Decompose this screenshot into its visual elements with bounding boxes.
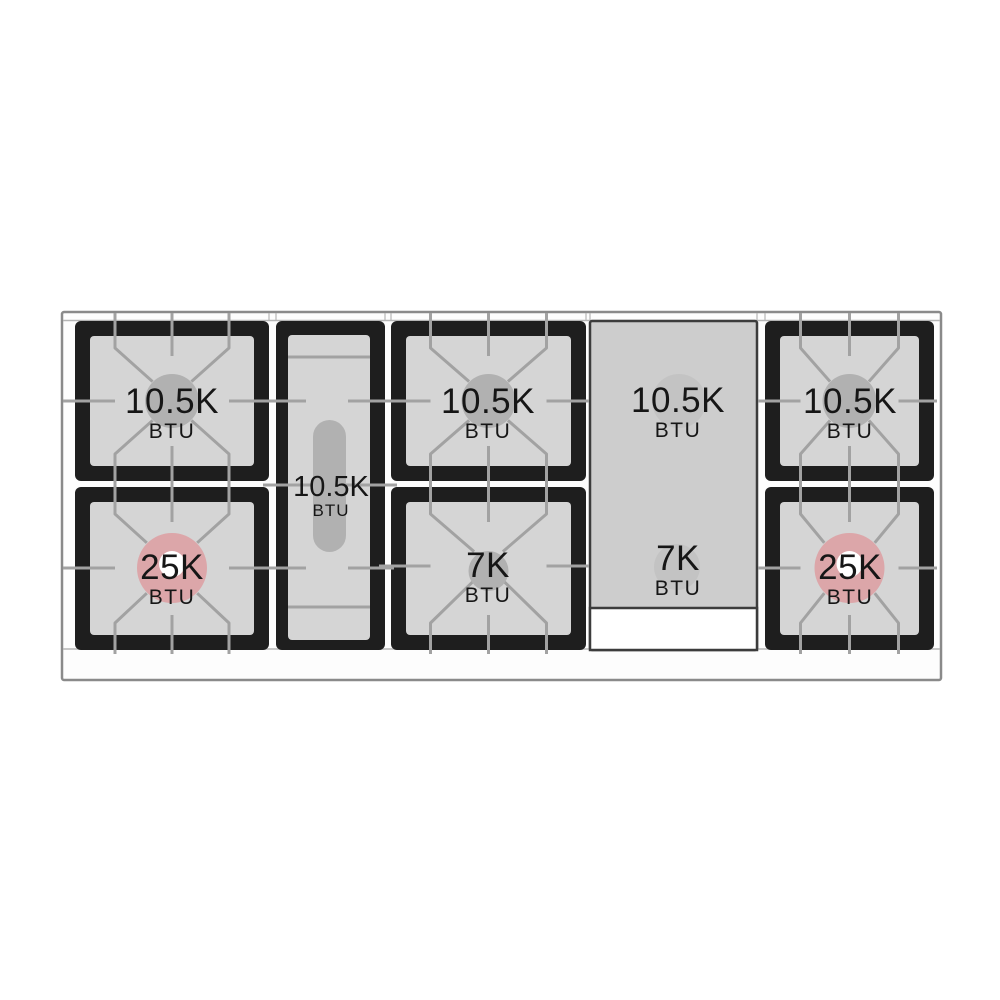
burner-label-mid-front: 7K BTU <box>465 549 512 608</box>
burner-label-right-rear: 10.5K BTU <box>803 385 897 444</box>
btu-value: 10.5K <box>293 473 369 501</box>
burner-label-center-oval: 10.5K BTU <box>293 473 369 520</box>
burner-label-left-rear: 10.5K BTU <box>125 385 219 444</box>
btu-value: 10.5K <box>631 384 725 418</box>
btu-value: 25K <box>818 551 882 585</box>
btu-value: 10.5K <box>803 385 897 419</box>
burner-label-right-front: 25K BTU <box>818 551 882 610</box>
btu-value: 25K <box>140 551 204 585</box>
btu-unit: BTU <box>655 577 702 601</box>
btu-unit: BTU <box>441 420 535 444</box>
cooktop-diagram: 10.5K BTU 25K BTU 10.5K BTU 10.5K BTU 7K… <box>0 0 1000 1000</box>
btu-value: 7K <box>655 542 702 576</box>
btu-value: 10.5K <box>441 385 535 419</box>
btu-unit: BTU <box>125 420 219 444</box>
btu-unit: BTU <box>818 586 882 610</box>
burner-label-left-front: 25K BTU <box>140 551 204 610</box>
btu-value: 7K <box>465 549 512 583</box>
burner-label-mid-rear: 10.5K BTU <box>441 385 535 444</box>
btu-unit: BTU <box>465 584 512 608</box>
cooktop-art <box>0 0 1000 1000</box>
grease-tray <box>590 608 757 650</box>
btu-unit: BTU <box>803 420 897 444</box>
burner-label-griddle-front: 7K BTU <box>655 542 702 601</box>
btu-unit: BTU <box>293 502 369 520</box>
burner-label-griddle-rear: 10.5K BTU <box>631 384 725 443</box>
btu-value: 10.5K <box>125 385 219 419</box>
btu-unit: BTU <box>140 586 204 610</box>
btu-unit: BTU <box>631 419 725 443</box>
